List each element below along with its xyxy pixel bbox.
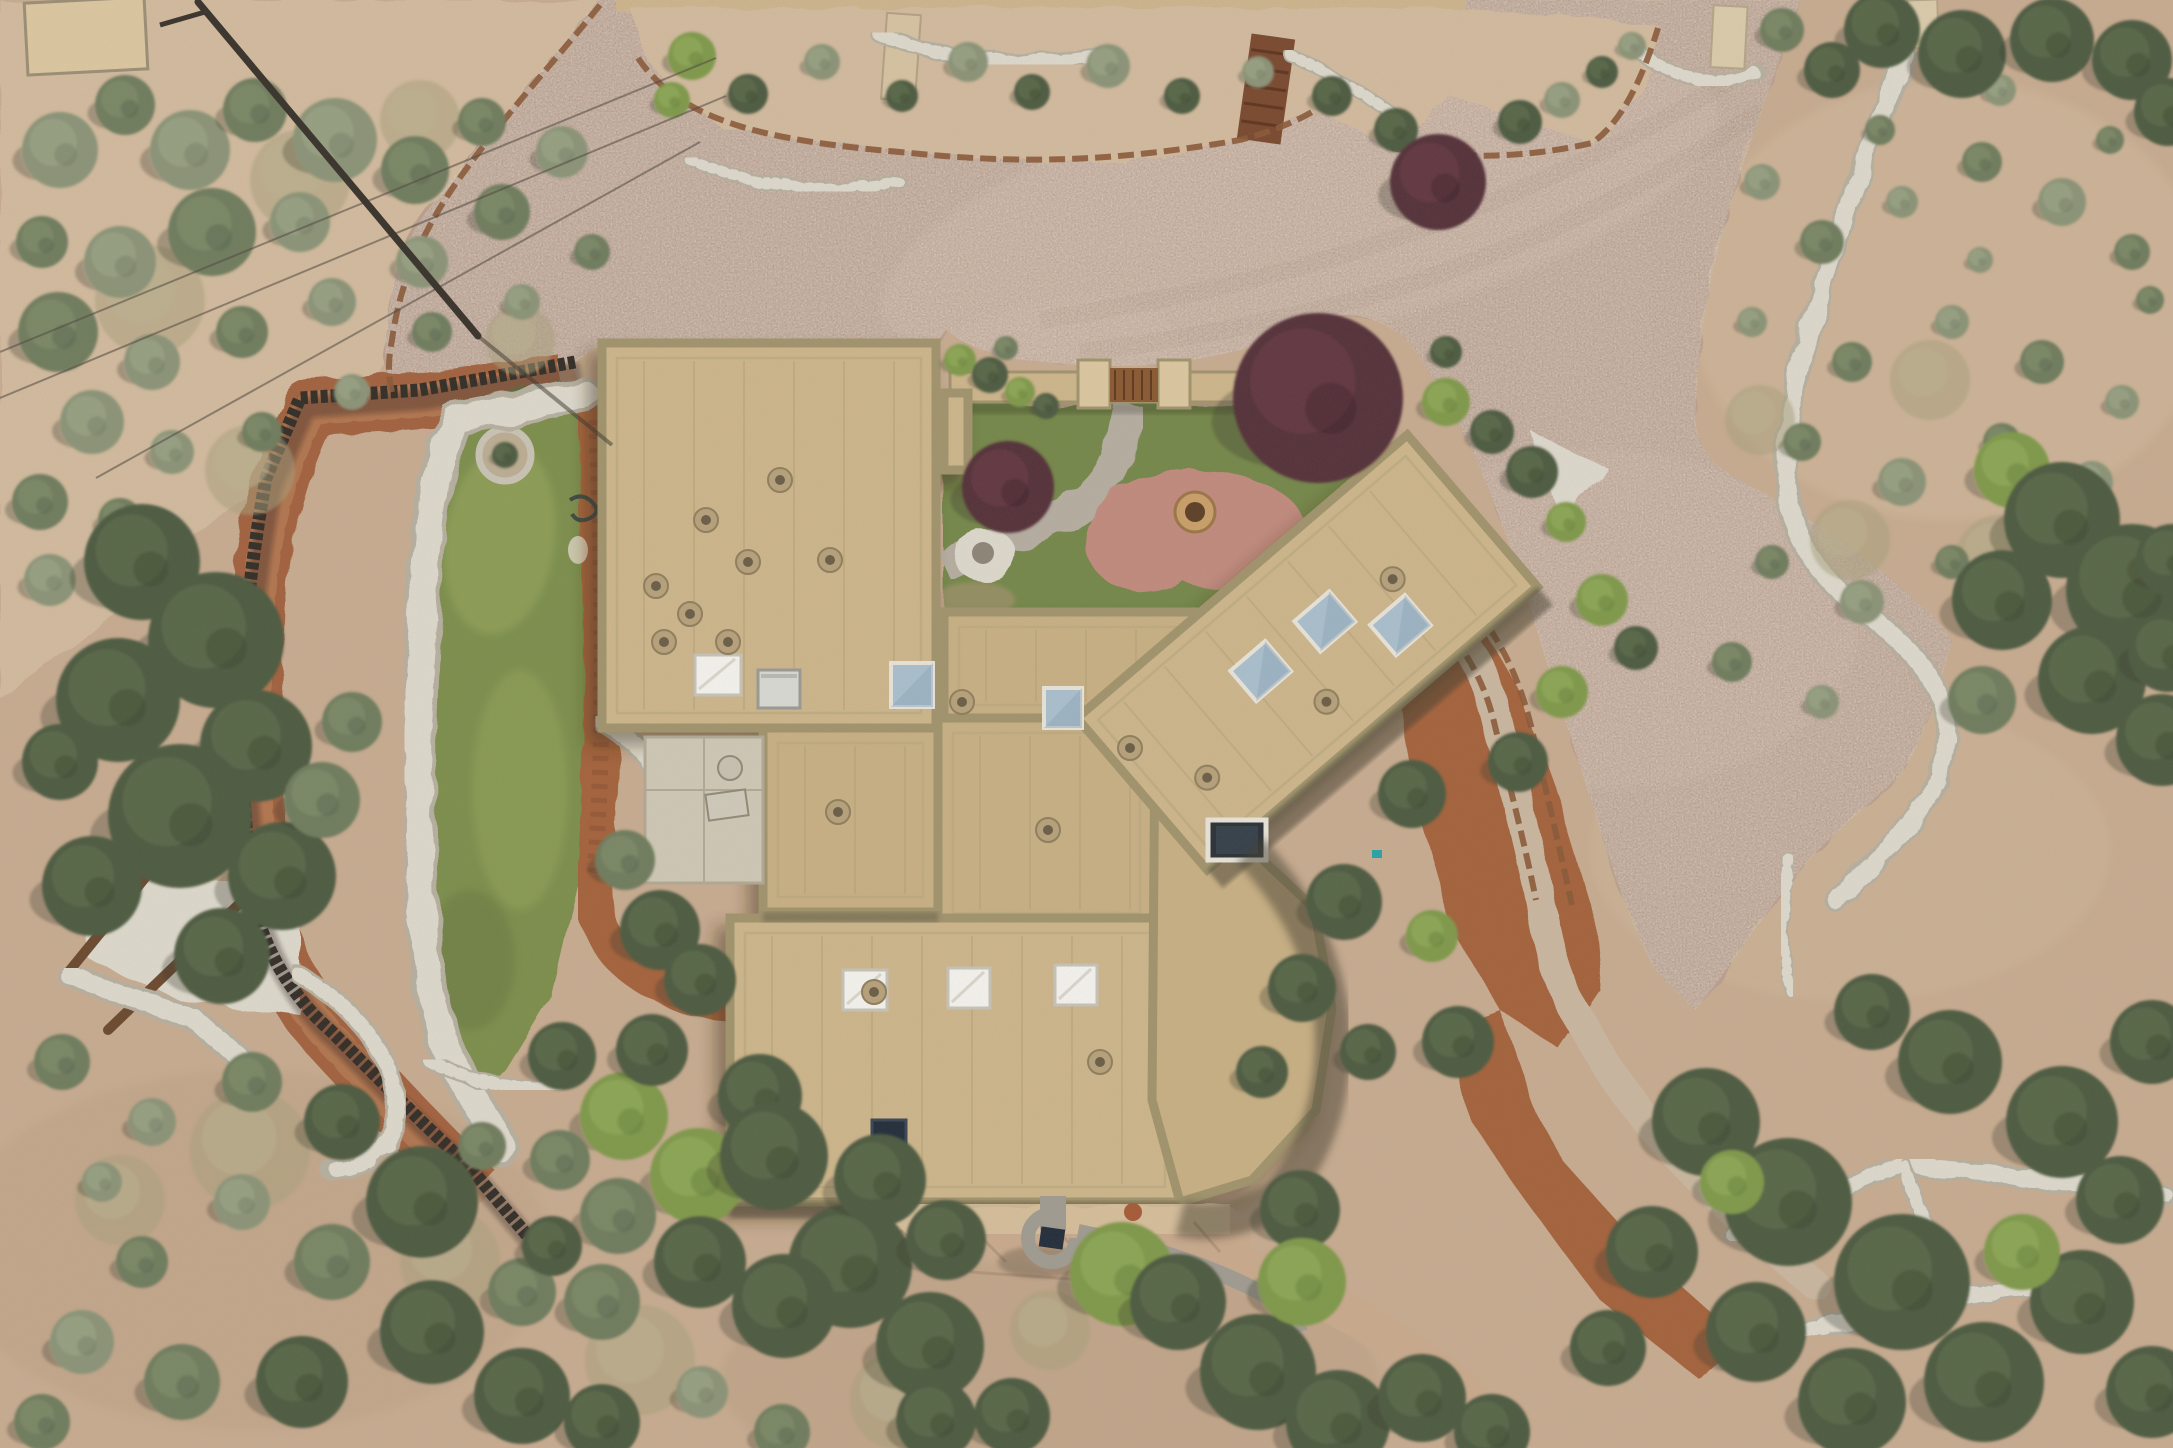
canopy	[1800, 220, 1844, 264]
canopy-dark	[1849, 358, 1861, 370]
tree	[2015, 340, 2065, 384]
rock-pebbles	[600, 720, 654, 770]
roof-se-block	[1152, 735, 1332, 1202]
top-bed	[630, 8, 1455, 162]
canopy	[530, 1130, 590, 1190]
canopy	[1983, 423, 2021, 461]
rock-swale	[70, 975, 240, 1058]
parapet-inner	[1098, 456, 1516, 849]
canopy	[34, 1034, 90, 1090]
curved-wall	[1078, 1232, 1300, 1332]
canopy-light	[338, 377, 360, 399]
canopy-light	[276, 197, 313, 234]
canopy-dark	[328, 298, 342, 312]
tree	[800, 44, 841, 80]
canopy	[2066, 524, 2173, 656]
canopy-dark	[1750, 319, 1759, 328]
canopy	[95, 75, 155, 135]
canopy	[2143, 543, 2173, 581]
canopy	[1744, 164, 1780, 200]
tree-shadow	[708, 1085, 788, 1131]
tree-shadow	[275, 790, 347, 832]
roof-south-wing	[730, 918, 1180, 1202]
canopy	[2106, 1346, 2173, 1438]
canopy	[2004, 462, 2120, 578]
tree	[1333, 1024, 1396, 1080]
fire-bowl	[1175, 492, 1215, 532]
canopy-light	[628, 897, 678, 947]
tree	[2101, 385, 2139, 419]
tree	[295, 1084, 381, 1160]
tree	[135, 1344, 221, 1420]
kiva-chimney	[1040, 1196, 1066, 1230]
canopy-light	[495, 1264, 537, 1306]
canopy-light	[1378, 112, 1405, 139]
west-garden	[66, 362, 790, 1258]
canopy-light	[492, 311, 535, 354]
roof-vent	[1376, 562, 1410, 596]
tree	[2110, 234, 2151, 270]
tree-shadow	[2032, 196, 2078, 222]
vent-base	[694, 508, 718, 532]
tree	[1081, 44, 1131, 88]
roof-surface	[1077, 435, 1537, 870]
rock-island	[1530, 430, 1610, 520]
tree-shadow	[2000, 29, 2080, 75]
vent-cap	[651, 581, 661, 591]
skylight-sheen	[699, 659, 735, 689]
roof-surface	[602, 343, 936, 728]
tree-shadow	[210, 325, 259, 354]
grass-tuft	[380, 80, 460, 160]
tree-shadow	[588, 852, 645, 885]
canopy-dark	[930, 1413, 954, 1437]
tree-shadow	[1692, 1173, 1753, 1208]
canopy	[2071, 461, 2113, 503]
tree	[2138, 543, 2173, 581]
canopy	[1546, 502, 1586, 542]
tree-shadow	[283, 129, 363, 175]
tree-shadow	[555, 1292, 627, 1334]
rock-base	[1905, 1168, 1945, 1285]
canopy-dark	[1453, 1036, 1475, 1058]
grass-tuft	[95, 245, 205, 355]
canopy-light	[588, 1185, 635, 1232]
tree	[90, 744, 252, 888]
tree-shadow	[27, 1054, 80, 1085]
canopy	[1984, 1214, 2060, 1290]
canopy-light	[302, 1231, 349, 1278]
kiva-fireplace	[998, 1196, 1300, 1332]
canopy-dark	[958, 357, 968, 367]
canopy-dark	[1975, 1371, 2011, 1407]
canopy	[620, 890, 700, 970]
vent-cap	[1095, 1057, 1105, 1067]
roof-vent	[950, 690, 974, 714]
canopy-light	[2049, 636, 2116, 703]
canopy	[75, 1155, 165, 1245]
tree	[75, 226, 156, 298]
canopy-light	[313, 282, 343, 312]
vent-base	[826, 800, 850, 824]
canopy-light	[239, 832, 306, 899]
tree-shadow	[2015, 356, 2057, 380]
tree-shadow	[245, 1370, 332, 1421]
tree-shadow	[1465, 426, 1507, 450]
tree-shadow	[8, 321, 84, 365]
stone-edging-run	[638, 58, 1312, 160]
canopy-light	[1964, 523, 2020, 579]
tree-shadow	[723, 89, 761, 111]
tree-shadow	[1964, 256, 1989, 270]
tree-shadow	[2118, 641, 2173, 685]
canopy-light	[301, 106, 353, 158]
canopy	[1430, 336, 1462, 368]
canopy-dark	[1995, 591, 2025, 621]
roof-surface	[938, 718, 1155, 928]
canopy-light	[1548, 85, 1570, 107]
aerial-photo	[0, 0, 2173, 1448]
tree	[707, 1102, 829, 1210]
canopy-light	[221, 311, 253, 343]
rock-pebbles	[690, 160, 900, 189]
canopy-light	[1018, 77, 1040, 99]
tree-shadow	[2105, 728, 2173, 779]
bed-slab	[881, 13, 921, 101]
canopy-dark	[54, 755, 77, 778]
canopy-light	[731, 1112, 798, 1179]
canopy-light	[2017, 1076, 2086, 1145]
tree-shadow	[140, 139, 216, 183]
canopy	[664, 944, 736, 1016]
garden-hose	[570, 496, 597, 520]
canopy-dark	[987, 372, 998, 383]
skylight-shade	[1230, 641, 1291, 701]
canopy-light	[971, 449, 1028, 506]
coyote-fence	[241, 362, 575, 1248]
tree-shadow	[1186, 1356, 1296, 1420]
tree-shadow	[940, 356, 970, 374]
tree-shadow	[1907, 42, 1991, 90]
patio-concrete	[645, 737, 763, 883]
tree	[823, 1134, 927, 1226]
canopy-light	[495, 444, 511, 460]
roof-vent	[1310, 685, 1344, 719]
canopy-dark	[2159, 559, 2170, 570]
rock-base	[1782, 860, 1792, 992]
canopy-light	[211, 700, 280, 769]
tree	[1369, 108, 1419, 152]
canopy	[1544, 82, 1580, 118]
east-mulch-bed	[1448, 1010, 1740, 1380]
canopy-dark	[691, 1167, 720, 1196]
power-wire	[0, 96, 726, 398]
vent-cap	[701, 515, 711, 525]
tree	[1909, 1322, 2044, 1442]
roof-vent	[644, 574, 668, 598]
tree	[1413, 1006, 1494, 1078]
tree	[643, 1216, 747, 1308]
tree	[93, 498, 143, 542]
vent-base	[1190, 761, 1224, 795]
gravel-highlight	[1340, 450, 1860, 790]
skylight-glass	[1230, 641, 1291, 701]
tree-shadow	[214, 861, 317, 920]
tree	[1030, 393, 1059, 419]
canopy-light	[1758, 548, 1779, 569]
canopy	[1805, 685, 1839, 719]
canopy-light	[463, 102, 493, 132]
canopy-dark	[1898, 478, 1912, 492]
tree-shadow	[896, 1229, 972, 1273]
canopy-dark	[669, 97, 680, 108]
canopy-light	[2125, 702, 2173, 759]
kiva-ring	[1028, 1214, 1076, 1262]
canopy	[1200, 1314, 1316, 1430]
tree	[352, 1146, 478, 1258]
tree	[515, 1216, 583, 1276]
stone-edging-run	[1392, 28, 1658, 156]
canopy-light	[947, 347, 967, 367]
canopy-dark	[115, 256, 137, 278]
skylight-shade	[1294, 591, 1355, 651]
canopy-light	[20, 1399, 55, 1434]
canopy	[24, 554, 76, 606]
mulch-texture	[594, 420, 602, 880]
canopy-dark	[754, 1088, 779, 1113]
canopy-light	[265, 1344, 322, 1401]
canopy	[1130, 1254, 1226, 1350]
tree-shadow	[90, 797, 227, 876]
tree-shadow	[162, 943, 253, 996]
vent-cap	[723, 637, 733, 647]
teal-pot	[1372, 850, 1382, 858]
tree-shadow	[1500, 465, 1549, 494]
canopy-light	[106, 255, 174, 323]
canopy	[95, 245, 205, 355]
canopy-dark	[819, 59, 830, 70]
canopy	[1804, 42, 1860, 98]
stone-edging-run	[389, 5, 600, 392]
canopy	[84, 226, 156, 298]
canopy	[270, 192, 330, 252]
roof-vent	[1088, 1050, 1112, 1074]
canopy-dark	[87, 416, 106, 435]
canopy-light	[1982, 439, 2029, 486]
canopy	[994, 336, 1018, 360]
tree-shadow	[467, 204, 520, 235]
canopy-dark	[1415, 1390, 1441, 1416]
canopy	[1576, 574, 1628, 626]
canopy-dark	[695, 974, 717, 996]
roof-vent	[652, 630, 676, 654]
canopy-dark	[1977, 694, 1997, 714]
canopy-light	[1842, 981, 1889, 1028]
canopy-dark	[38, 237, 54, 253]
roof-seam	[1370, 491, 1477, 616]
tree	[662, 32, 716, 80]
canopy-light	[410, 1219, 472, 1281]
canopy-light	[572, 1271, 619, 1318]
canopy-light	[1740, 310, 1759, 329]
tree-shadow	[1540, 95, 1574, 115]
roof-vent	[826, 800, 850, 824]
tree-shadow	[523, 1152, 580, 1185]
roof-west-mid	[763, 728, 938, 912]
canopy	[380, 80, 460, 160]
tree	[1755, 8, 1805, 52]
canopy-light	[133, 1102, 163, 1132]
rock-base	[300, 975, 398, 1170]
tree-shadow	[1931, 317, 1963, 336]
canopy-light	[1716, 1291, 1778, 1353]
rock-swale	[600, 720, 654, 770]
tree-shadow	[1582, 68, 1612, 86]
tire-track	[1080, 110, 1762, 352]
canopy-dark	[176, 1375, 199, 1398]
canopy-light	[484, 1357, 544, 1417]
pole-crossarm	[160, 12, 205, 25]
canopy-light	[1808, 688, 1829, 709]
canopy-light	[596, 1315, 664, 1383]
patio-table	[718, 756, 742, 780]
tree	[1465, 410, 1515, 454]
canopy	[216, 306, 268, 358]
tree-shadow	[1160, 91, 1194, 111]
neighbor-shed-roof	[24, 0, 148, 75]
tree	[315, 692, 383, 752]
vent-cap	[1125, 743, 1135, 753]
canopy-dark	[1018, 389, 1027, 398]
tree	[2095, 1346, 2173, 1438]
tree	[1827, 342, 1872, 382]
parapet-inner	[778, 743, 923, 897]
canopy-dark	[99, 1178, 111, 1190]
tree-shadow	[707, 1141, 810, 1200]
canopy	[1614, 626, 1658, 670]
tree-shadow	[1030, 402, 1055, 416]
ramp-wood	[1237, 33, 1295, 144]
canopy-dark	[2089, 478, 2102, 491]
east-gravel-path	[1420, 585, 1815, 1285]
canopy	[1470, 410, 1514, 454]
canopy-light	[2024, 344, 2051, 371]
canopy-light	[21, 221, 53, 253]
canopy-dark	[2046, 32, 2071, 57]
canopy-light	[1494, 737, 1531, 774]
canopy-light	[1018, 1297, 1068, 1347]
canopy-light	[463, 1126, 493, 1156]
canopy-light	[18, 479, 53, 514]
canopy-light	[220, 1179, 255, 1214]
vent-base	[1036, 818, 1060, 842]
roof-center	[938, 718, 1155, 928]
canopy-dark	[1727, 1176, 1746, 1195]
tree-shadow	[520, 1047, 585, 1084]
canopy	[1268, 954, 1336, 1022]
canopy	[474, 1348, 570, 1444]
canopy	[896, 1380, 976, 1448]
canopy-dark	[58, 1057, 75, 1074]
canopy	[1737, 307, 1767, 337]
tree-shadow	[352, 1187, 458, 1249]
canopy-dark	[1171, 1293, 1200, 1322]
canopy-light	[800, 1215, 877, 1292]
canopy	[1652, 1068, 1760, 1176]
canopy	[334, 374, 370, 410]
roof-vent	[1190, 761, 1224, 795]
vent-base	[1376, 562, 1410, 596]
roof-details	[644, 468, 1553, 1218]
tree-shadow	[943, 57, 981, 79]
canopy-light	[158, 117, 208, 167]
canopy	[564, 1384, 640, 1448]
tree	[1445, 1394, 1531, 1448]
tree-shadow	[610, 919, 686, 963]
tree	[214, 822, 336, 930]
canopy	[1586, 56, 1618, 88]
roof-surface	[944, 612, 1194, 720]
tree-shadow	[638, 1163, 729, 1216]
canopy	[1164, 78, 1200, 114]
tree-shadow	[145, 446, 187, 470]
courtyard-north-wall	[950, 372, 1316, 402]
canopy-dark	[429, 328, 441, 340]
tree	[1740, 164, 1781, 200]
canopy	[972, 357, 1008, 393]
tree-shadow	[1639, 1107, 1742, 1166]
tree	[773, 1204, 913, 1328]
canopy-dark	[336, 1115, 359, 1138]
gravel-highlight	[593, 211, 1266, 829]
tree-shadow	[499, 297, 533, 317]
canopy-dark	[1942, 1053, 1973, 1084]
vent-base	[716, 630, 740, 654]
canopy-light	[1848, 1226, 1932, 1310]
canopy	[1488, 732, 1548, 792]
tree	[145, 430, 195, 474]
canopy	[1798, 1348, 1906, 1448]
tree	[1778, 423, 1821, 461]
tree-shadow	[2093, 136, 2120, 151]
canopy-dark	[1428, 931, 1444, 947]
tree	[1615, 32, 1647, 60]
canopy-light	[154, 434, 181, 461]
canopy	[1258, 1238, 1346, 1326]
tree	[570, 234, 611, 270]
rock-base	[1800, 1282, 2122, 1332]
tree-shadow	[555, 1412, 627, 1448]
canopy-dark	[250, 104, 269, 123]
canopy-dark	[900, 93, 910, 103]
canopy	[214, 1174, 270, 1230]
canopy-dark	[2058, 198, 2072, 212]
rock-pebbles	[70, 975, 240, 1058]
canopy	[1755, 545, 1789, 579]
canopy-light	[1992, 1221, 2039, 1268]
tree	[965, 1378, 1051, 1448]
canopy-light	[1737, 1150, 1816, 1229]
canopy-light	[121, 1241, 153, 1273]
canopy-dark	[1633, 644, 1646, 657]
canopy-light	[1966, 146, 1991, 171]
tree	[1885, 1010, 2002, 1114]
tree	[1260, 954, 1337, 1022]
canopy-light	[1433, 339, 1453, 359]
tree	[1400, 910, 1459, 962]
gate-wood	[1110, 368, 1158, 402]
skylight-blue	[1230, 641, 1291, 701]
